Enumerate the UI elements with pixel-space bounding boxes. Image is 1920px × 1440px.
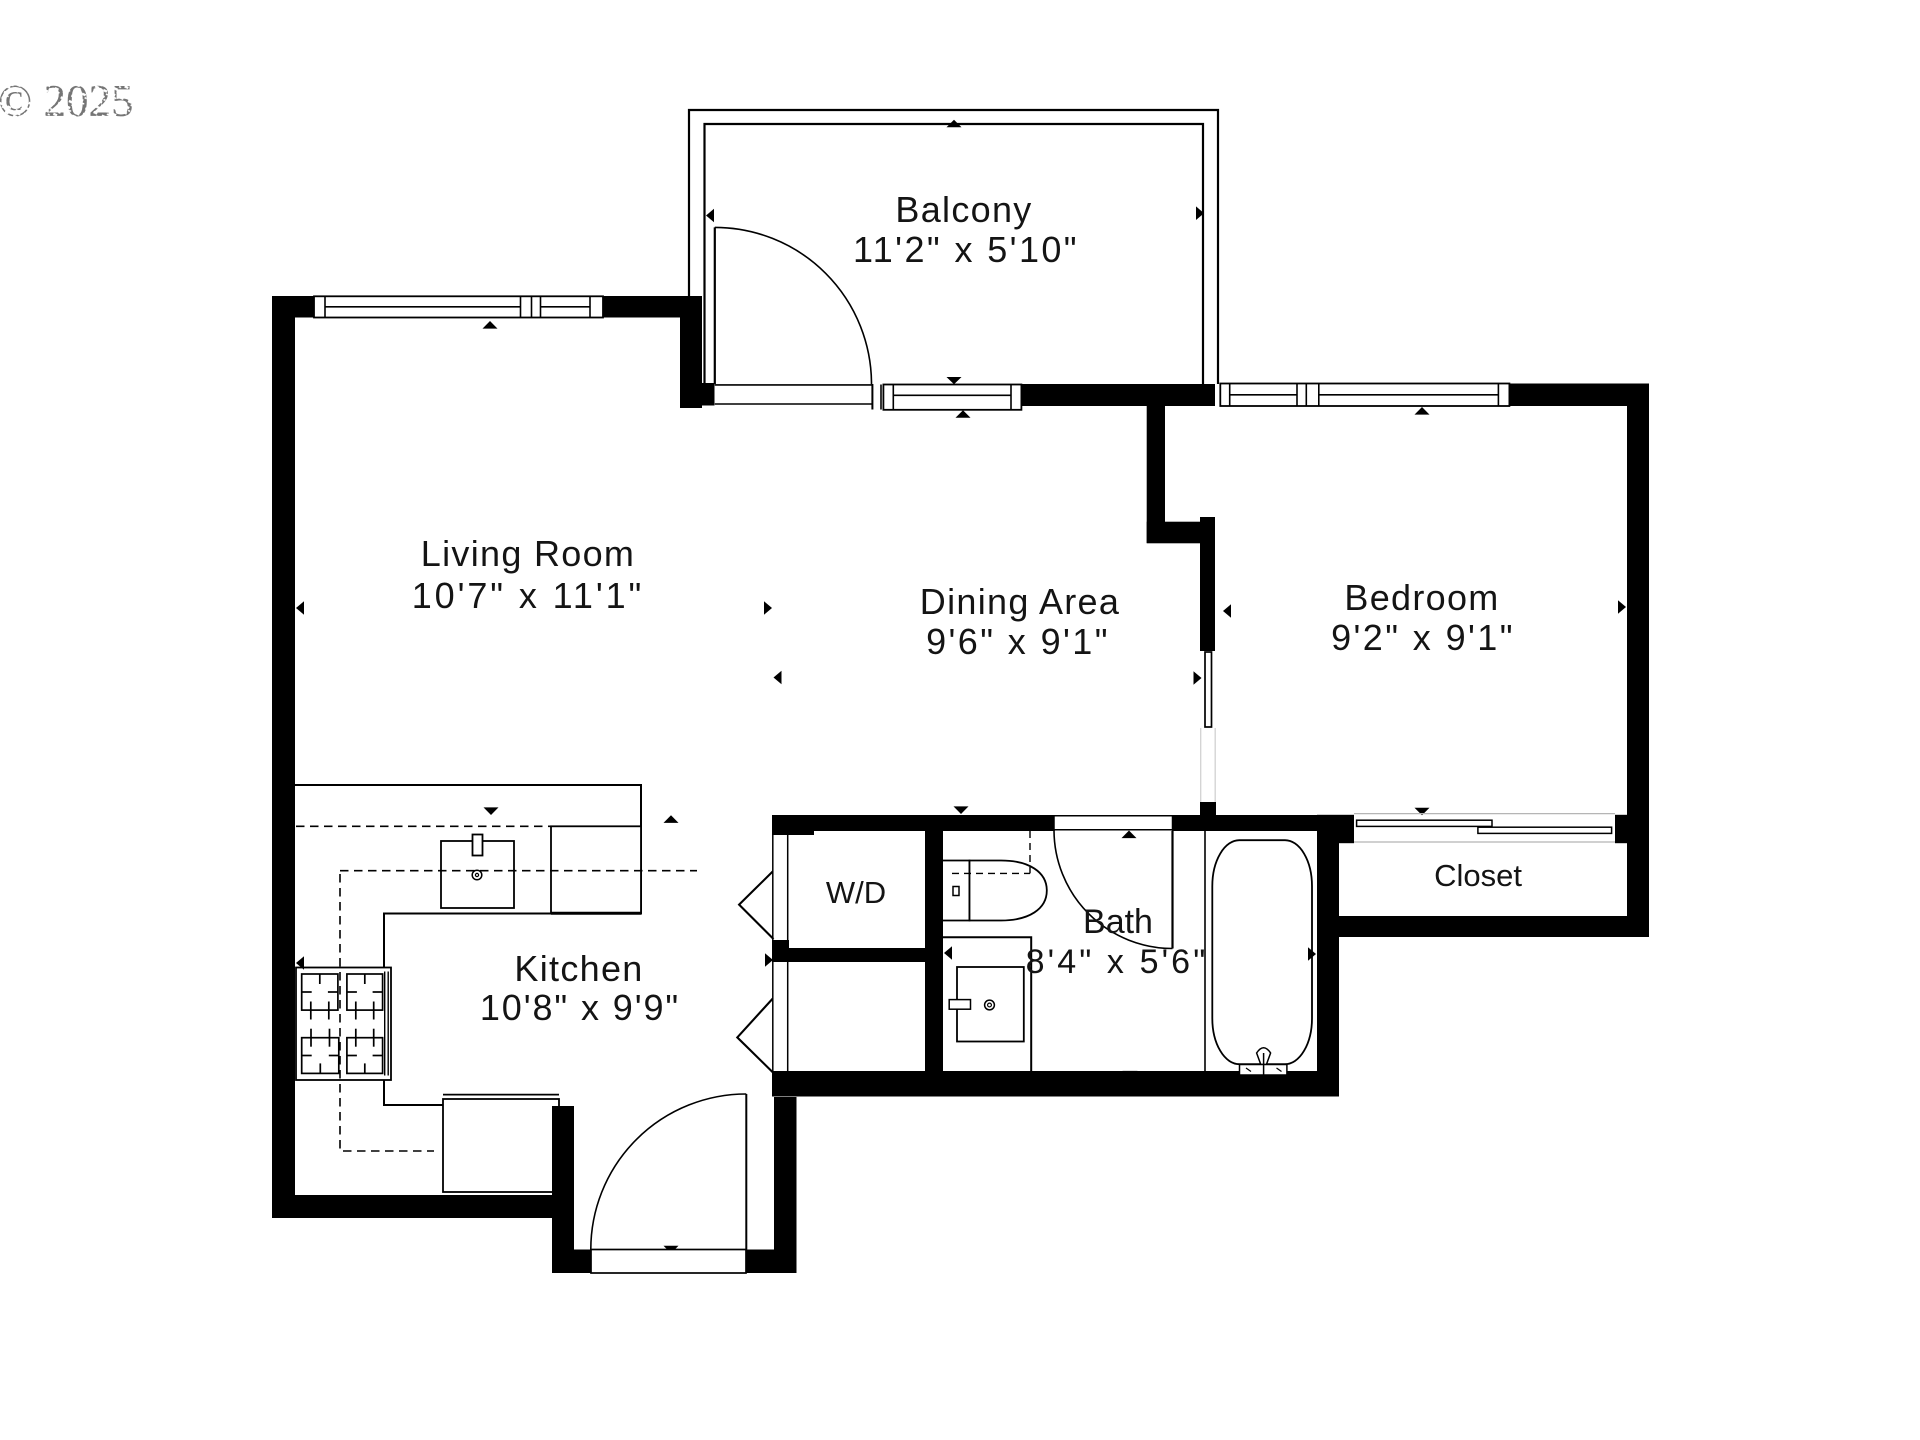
svg-text:10'8" x 9'9": 10'8" x 9'9" [480,987,680,1028]
svg-text:8'4" x 5'6": 8'4" x 5'6" [1026,943,1209,981]
svg-text:Balcony: Balcony [895,189,1032,230]
svg-text:Closet: Closet [1434,858,1522,893]
svg-text:9'2" x 9'1": 9'2" x 9'1" [1331,617,1515,658]
svg-text:Kitchen: Kitchen [514,948,643,989]
svg-text:Bedroom: Bedroom [1344,577,1499,618]
svg-text:© 2025: © 2025 [0,76,133,126]
svg-text:10'7" x 11'1": 10'7" x 11'1" [412,575,644,616]
svg-text:W/D: W/D [826,875,886,910]
svg-text:Dining Area: Dining Area [920,581,1120,622]
svg-text:Living Room: Living Room [421,533,635,574]
svg-text:11'2" x 5'10": 11'2" x 5'10" [853,229,1079,270]
svg-text:Bath: Bath [1083,903,1153,941]
svg-text:9'6" x 9'1": 9'6" x 9'1" [926,621,1110,662]
